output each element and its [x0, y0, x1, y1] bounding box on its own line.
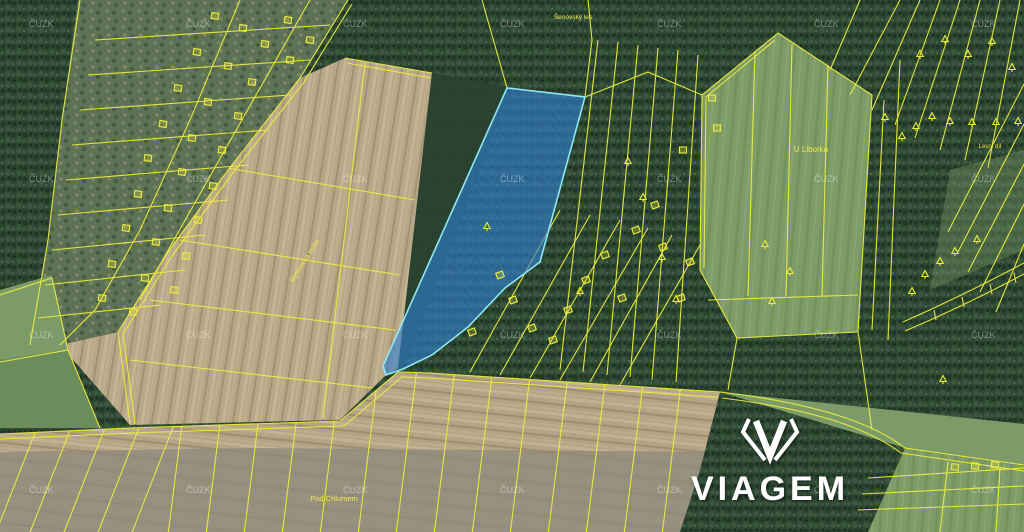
cuzk-watermark-text: ČUZK [657, 174, 682, 184]
building-marker [951, 464, 958, 471]
building-marker [194, 217, 202, 224]
cuzk-watermark-text: ČUZK [657, 485, 682, 495]
cuzk-watermark-text: ČUZK [343, 485, 368, 495]
building-marker [188, 135, 196, 142]
building-marker [174, 85, 182, 92]
building-marker [224, 63, 232, 70]
building-marker [134, 191, 142, 198]
cadastral-map: U LiborkaPod ChlumemMyslivecká cestaŠeno… [0, 0, 1024, 532]
building-marker [144, 155, 152, 162]
cuzk-watermark-text: ČUZK [500, 174, 525, 184]
lesni-dil-label: Lesní díl [979, 144, 1002, 150]
u-liborka-label: U Liborka [794, 145, 829, 154]
cuzk-watermark-text: ČUZK [657, 330, 682, 340]
building-marker [248, 79, 256, 86]
building-marker [680, 147, 687, 153]
building-marker [182, 253, 190, 260]
building-marker [193, 49, 201, 56]
building-marker [234, 113, 242, 120]
building-marker [714, 125, 721, 131]
building-marker [204, 99, 212, 106]
building-marker [218, 147, 226, 154]
cuzk-watermark-text: ČUZK [343, 19, 368, 29]
cuzk-watermark-text: ČUZK [186, 485, 211, 495]
cuzk-watermark-text: ČUZK [814, 174, 839, 184]
cuzk-watermark-text: ČUZK [29, 485, 54, 495]
cuzk-watermark-text: ČUZK [29, 19, 54, 29]
building-marker [261, 41, 269, 48]
cuzk-watermark-text: ČUZK [500, 485, 525, 495]
cuzk-watermark-text: ČUZK [657, 19, 682, 29]
building-marker [122, 225, 130, 232]
cuzk-watermark-text: ČUZK [186, 330, 211, 340]
viagem-logo-text: VIAGEM [691, 470, 849, 508]
building-marker [991, 462, 998, 469]
building-marker [152, 239, 160, 246]
building-marker [284, 17, 292, 24]
cuzk-watermark-text: ČUZK [814, 19, 839, 29]
building-marker [211, 13, 219, 20]
building-marker [178, 169, 186, 176]
cuzk-watermark-text: ČUZK [814, 330, 839, 340]
pod-chlumem-label: Pod Chlumem [310, 494, 358, 503]
building-marker [306, 37, 314, 44]
cuzk-watermark-text: ČUZK [971, 174, 996, 184]
cuzk-watermark-text: ČUZK [29, 174, 54, 184]
building-marker [164, 205, 172, 212]
cuzk-watermark-text: ČUZK [29, 330, 54, 340]
cuzk-watermark-text: ČUZK [500, 19, 525, 29]
building-marker [239, 25, 247, 32]
building-marker [98, 295, 106, 302]
building-marker [108, 261, 116, 268]
building-marker [129, 309, 137, 316]
map-screenshot: U LiborkaPod ChlumemMyslivecká cestaŠeno… [0, 0, 1024, 532]
forest-name-label: Šenovský les [554, 12, 593, 21]
cuzk-watermark-text: ČUZK [186, 19, 211, 29]
cuzk-watermark-text: ČUZK [343, 174, 368, 184]
building-marker [971, 463, 978, 470]
cuzk-watermark-text: ČUZK [971, 330, 996, 340]
building-marker [709, 95, 716, 101]
building-marker [159, 121, 167, 128]
building-marker [141, 275, 149, 282]
cuzk-watermark-text: ČUZK [186, 174, 211, 184]
cuzk-watermark-text: ČUZK [343, 330, 368, 340]
building-marker [286, 57, 294, 64]
building-marker [170, 287, 178, 294]
cuzk-watermark-text: ČUZK [500, 330, 525, 340]
cuzk-watermark-text: ČUZK [971, 19, 996, 29]
cuzk-watermark-text: ČUZK [971, 485, 996, 495]
